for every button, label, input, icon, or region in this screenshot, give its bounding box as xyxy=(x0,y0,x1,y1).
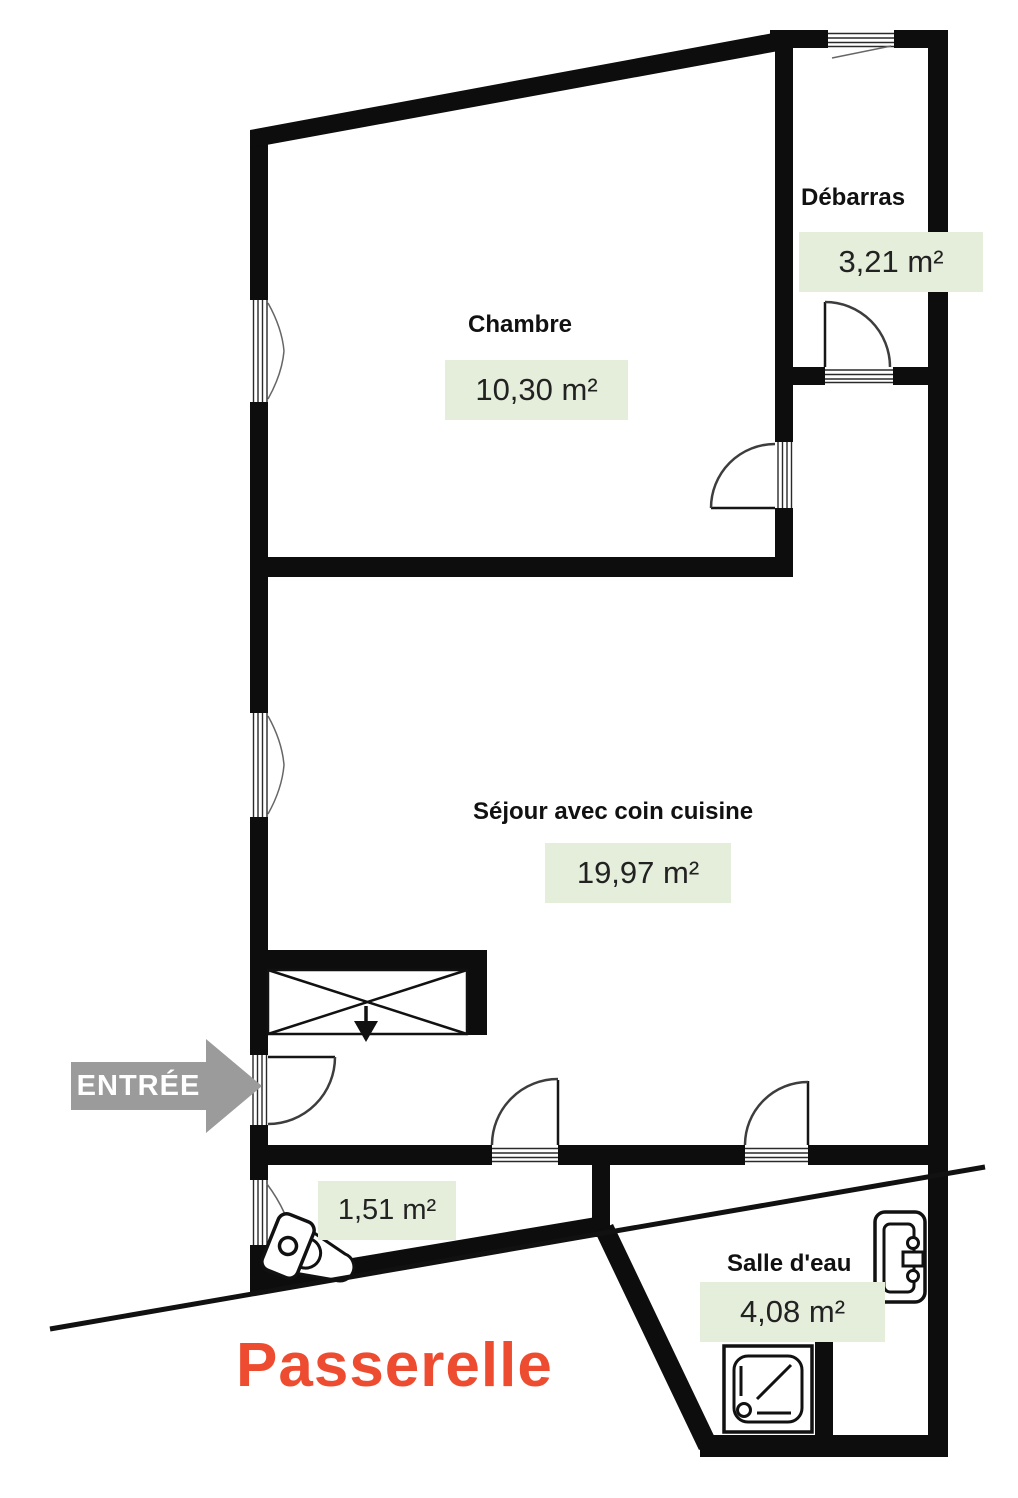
sejour-label: Séjour avec coin cuisine xyxy=(473,798,753,826)
debarras-door-swing-icon xyxy=(825,302,893,385)
kitchen-block-top-wall xyxy=(266,950,487,970)
window-icon-top xyxy=(828,30,894,58)
floor-plan: Chambre 10,30 m² Débarras 3,21 m² Séjour… xyxy=(0,0,1018,1498)
floor-plan-drawing xyxy=(0,0,1018,1498)
salle-deau-area-badge: 4,08 m² xyxy=(700,1282,885,1342)
chambre-bottom-wall xyxy=(250,557,793,577)
sejour-door-left-swing-icon xyxy=(492,1079,558,1165)
kitchen-duct-icon xyxy=(268,970,467,1042)
shower-partition-wall xyxy=(815,1342,833,1435)
entrance-door-swing-icon xyxy=(250,1055,335,1125)
sejour-bottom-wall xyxy=(250,1145,948,1165)
salle-deau-bottom-wall xyxy=(700,1435,948,1457)
chambre-area-badge: 10,30 m² xyxy=(445,360,628,420)
debarras-area-badge: 3,21 m² xyxy=(799,232,983,292)
top-diagonal-wall xyxy=(250,31,784,148)
kitchen-block-right-wall xyxy=(467,950,487,1035)
window-icon-left-middle xyxy=(250,713,284,817)
chambre-label: Chambre xyxy=(468,311,572,339)
entree-label: ENTRÉE xyxy=(71,1062,206,1110)
sejour-door-right-swing-icon xyxy=(745,1081,808,1165)
debarras-label: Débarras xyxy=(801,184,905,212)
shower-tray-icon xyxy=(724,1346,812,1432)
passerelle-label: Passerelle xyxy=(236,1330,553,1401)
window-icon-left-upper xyxy=(250,300,284,402)
salle-deau-slanted-wall xyxy=(595,1224,717,1450)
sejour-area-badge: 19,97 m² xyxy=(545,843,731,903)
salle-deau-label: Salle d'eau xyxy=(727,1250,851,1278)
chambre-door-swing-icon xyxy=(711,442,793,508)
wc-area-badge: 1,51 m² xyxy=(318,1181,456,1240)
